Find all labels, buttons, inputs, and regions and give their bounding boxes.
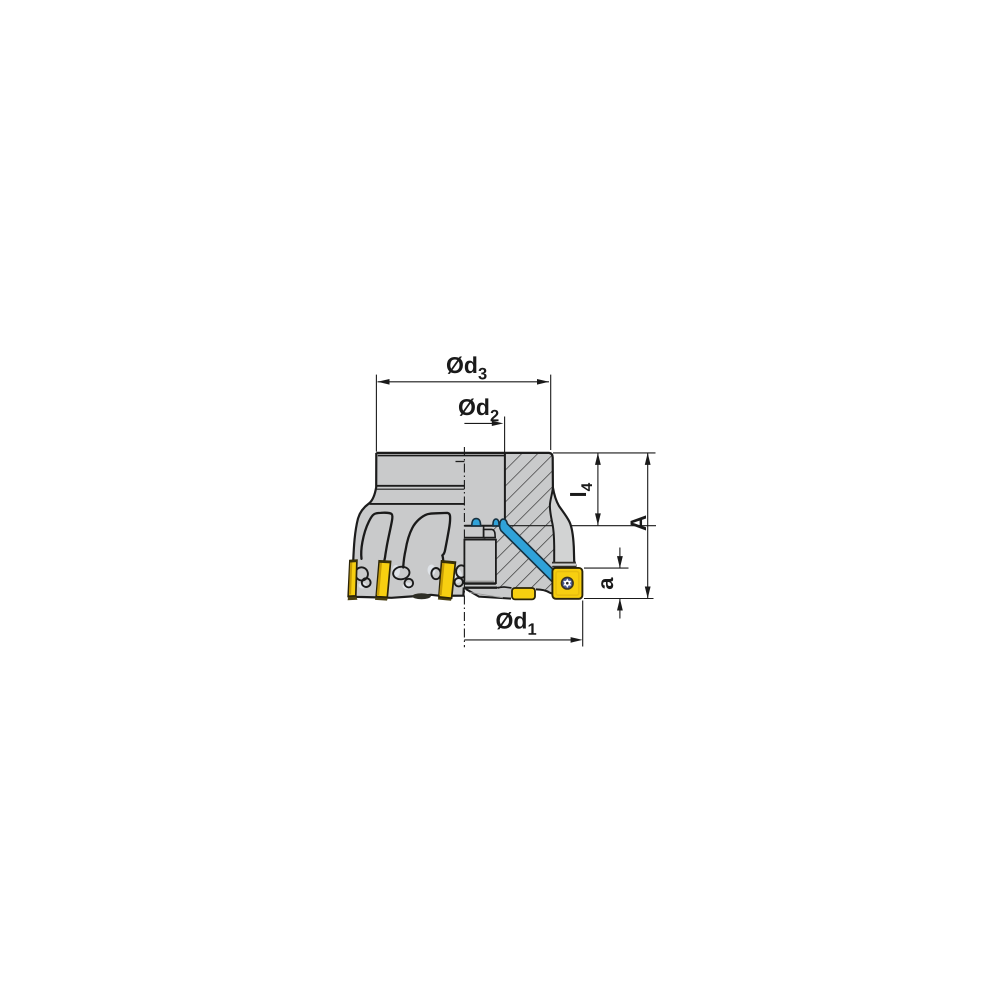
svg-text:a: a bbox=[593, 577, 618, 590]
svg-text:A: A bbox=[626, 515, 651, 531]
svg-text:l4: l4 bbox=[566, 482, 596, 497]
svg-text:Ød3: Ød3 bbox=[446, 352, 487, 383]
svg-text:Ød2: Ød2 bbox=[458, 394, 499, 425]
svg-text:Ød1: Ød1 bbox=[495, 607, 536, 638]
